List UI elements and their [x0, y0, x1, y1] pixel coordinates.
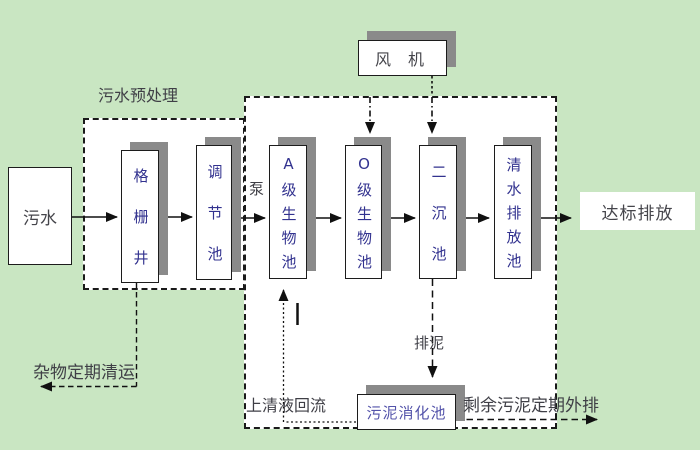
- tank-grid-well-label: 格栅井: [133, 168, 148, 291]
- effluent-label: 达标排放: [602, 199, 674, 224]
- debris-removal-label: 杂物定期清运: [33, 364, 135, 384]
- sludge-discharge-label: 排泥: [414, 335, 444, 352]
- supernatant-return-label: 上清液回流: [246, 397, 326, 415]
- tank-a-bio-label: A级生物池: [281, 155, 296, 278]
- tank-grid-well: 格栅井: [121, 150, 159, 283]
- wastewater-process-flow-diagram: 污水 风 机 达标排放 污泥消化池 格栅井 调节池 A级生物池 O级生物池 二沉…: [0, 0, 700, 450]
- pump-label: 泵: [249, 181, 264, 198]
- fan-box: 风 机: [358, 40, 447, 76]
- tank-a-bio: A级生物池: [269, 145, 307, 279]
- tank-o-bio-label: O级生物池: [356, 155, 371, 278]
- tank-secondary-clarifier: 二沉池: [419, 145, 457, 279]
- effluent-box: 达标排放: [580, 192, 695, 230]
- tank-o-bio: O级生物池: [345, 145, 382, 279]
- pretreatment-zone-label: 污水预处理: [98, 87, 178, 105]
- fan-label: 风 机: [375, 46, 430, 70]
- excess-sludge-out-label: 剩余污泥定期外排: [463, 397, 599, 417]
- influent-box: 污水: [8, 167, 72, 265]
- sludge-digester-label: 污泥消化池: [366, 402, 446, 423]
- tank-secondary-clarifier-label: 二沉池: [431, 164, 446, 287]
- tank-regulating: 调节池: [196, 145, 232, 280]
- tank-regulating-label: 调节池: [207, 164, 222, 287]
- tank-clean-water-discharge-label: 清水排放池: [506, 157, 521, 277]
- sludge-digester-box: 污泥消化池: [357, 394, 456, 430]
- tank-clean-water-discharge: 清水排放池: [494, 145, 532, 279]
- influent-label: 污水: [23, 204, 57, 229]
